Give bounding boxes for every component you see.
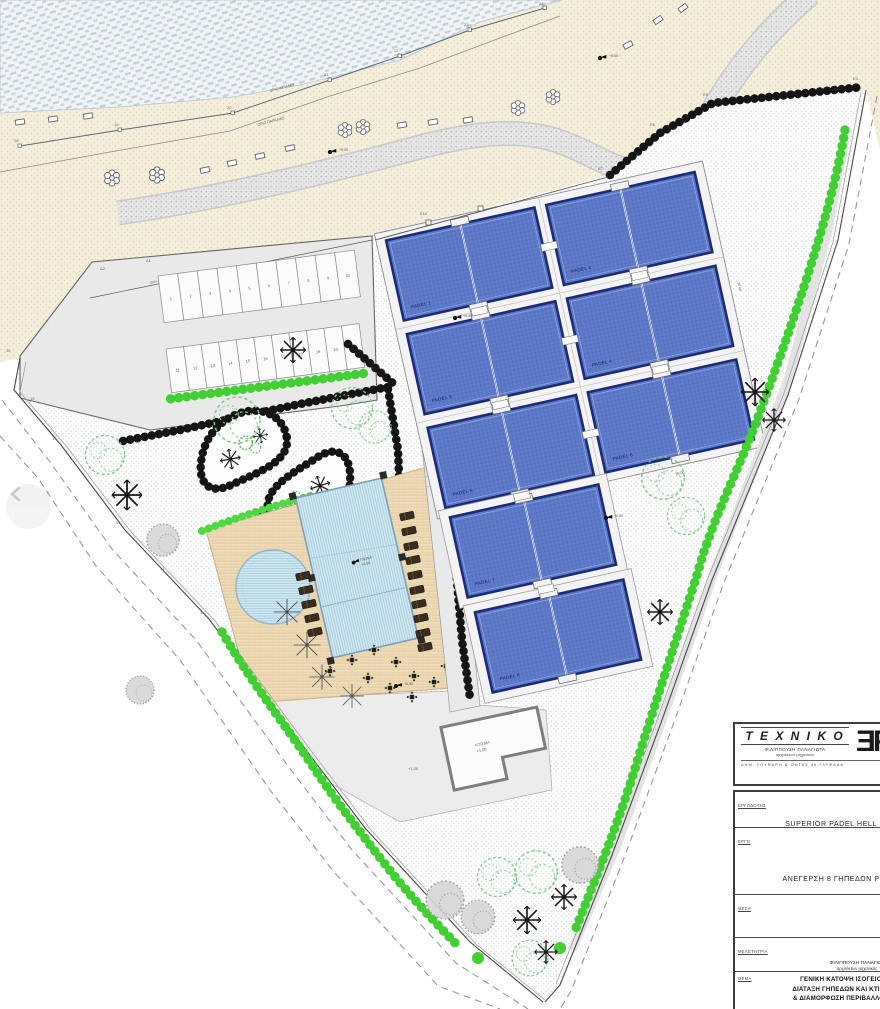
point-label: 14	[52, 436, 57, 441]
subject-line: ΓΕΝΙΚΗ ΚΑΤΟΨΗ ΙΣΟΓΕΙΟΥ	[762, 975, 880, 985]
brand-name: T E X N I K O	[741, 727, 849, 745]
point-label: Ε5	[703, 92, 709, 97]
subject-label: ΘΕΜΑ	[738, 974, 762, 1009]
title-block: T E X N I K O ΦΙΛΙΠΠΟΥΣΗ ΠΑΝΑΓΙΩΤΑ αρχιτ…	[733, 722, 880, 1009]
architect-logo-icon: ƎF	[849, 727, 880, 757]
svg-text:+0.00: +0.00	[609, 54, 618, 58]
brand-role: αρχιτέκτων μηχανικός	[741, 752, 849, 757]
subject-line: ΔΙΑΤΑΞΗ ΓΗΠΕΔΩΝ ΚΑΙ ΚΤΙΣΜΑ	[762, 985, 880, 995]
svg-text:+0.50: +0.50	[463, 314, 472, 318]
shore-point: 24	[539, 1, 544, 6]
point-label: Ε7	[598, 166, 604, 171]
point-label: Ε10	[420, 211, 428, 216]
point-label: 16	[6, 348, 11, 353]
architect-logo-box: T E X N I K O ΦΙΛΙΠΠΟΥΣΗ ΠΑΝΑΓΙΩΤΑ αρχιτ…	[733, 722, 880, 786]
project-label: ΕΡΓΟ	[738, 839, 750, 844]
shore-point: 20	[227, 105, 232, 110]
client-label: ΕΡΓΟΔΟΤΗΣ	[738, 803, 766, 808]
designer-role: αρχιτέκτων μηχανικός	[790, 966, 880, 971]
svg-text:+0.00: +0.00	[339, 148, 348, 152]
point-label: 15	[30, 396, 35, 401]
svg-text:+0.50: +0.50	[614, 514, 623, 518]
designer-label: ΜΕΛΕΤΗΤΡΙΑ	[738, 949, 768, 954]
shore-point: 19	[114, 122, 119, 127]
chevron-left-icon	[6, 484, 26, 504]
point-label: 12	[160, 566, 165, 571]
point-label: Ε6	[650, 122, 656, 127]
brand-address: ΔΗΜ. ΓΟΥΝΑΡΗ & ΟΝΤΑΣ 40 ΓΛΥΦΑΔΑ	[741, 760, 880, 767]
shore-point: 23	[464, 22, 469, 27]
client-name: SUPERIOR PADEL HELL	[738, 819, 880, 828]
deck-elevation: +0.50	[404, 682, 413, 686]
project-name: ΑΝΕΓΕΡΣΗ 8 ΓΗΠΕΔΩΝ Ρ	[738, 874, 880, 883]
terrace-elevation: +1.00	[408, 766, 419, 771]
round-pool	[236, 550, 310, 624]
screenshot-root: 18 19 20 21 22 23 24 ΟΡΙΟ ΑΙΓΙΑΛΟΥ ΟΡΙΟ …	[0, 0, 880, 1009]
shore-point: 22	[394, 48, 399, 53]
point-label: Ε4	[853, 76, 859, 81]
location-label: ΘΕΣΗ	[738, 906, 751, 911]
point-label: Δ2	[100, 266, 106, 271]
carousel-prev-button[interactable]	[6, 484, 51, 529]
title-block-table: ΕΡΓΟΔΟΤΗΣ SUPERIOR PADEL HELL ΕΡΓΟ ΑΝΕΓΕ…	[733, 790, 880, 1009]
subject-line: & ΔΙΑΜΟΡΦΩΣΗ ΠΕΡΙΒΑΛΛΟΝΤ	[762, 994, 880, 1004]
shore-point: 21	[324, 72, 329, 77]
point-label: 13	[116, 520, 121, 525]
shore-point: 18	[14, 138, 19, 143]
point-label: Δ1	[146, 258, 152, 263]
